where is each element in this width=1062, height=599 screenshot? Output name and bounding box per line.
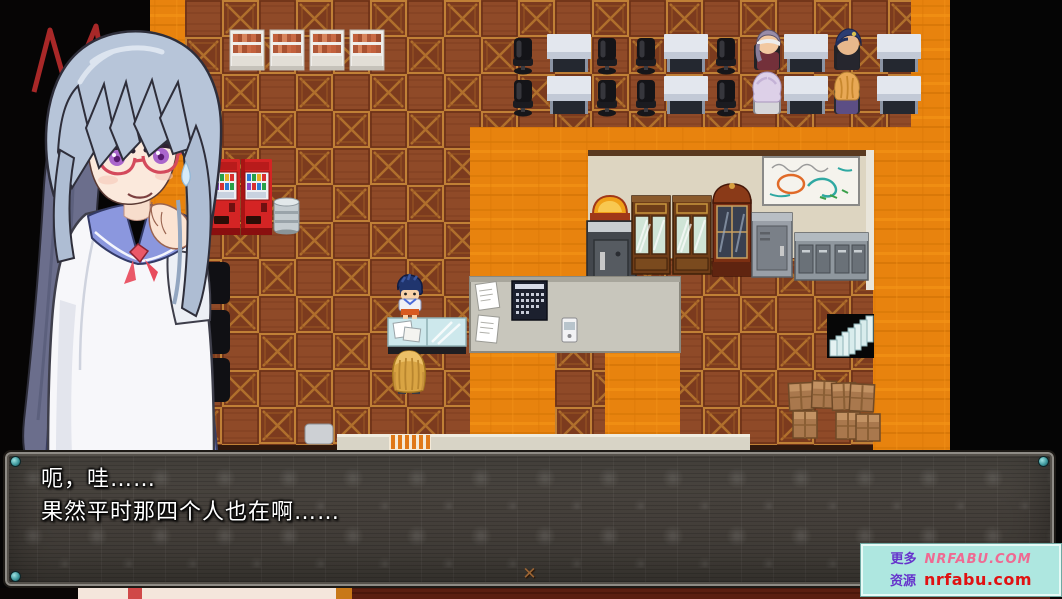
office-chair: [513, 80, 533, 117]
bookshelf: [310, 30, 344, 70]
whiteboard: [763, 157, 859, 205]
display-cabinet: [632, 196, 670, 274]
trash-can: [274, 198, 299, 235]
office-chair: [716, 38, 736, 75]
intercom: [562, 318, 577, 342]
office-chair: [597, 80, 617, 117]
continue-indicator-icon[interactable]: ✕: [522, 564, 536, 584]
tall-cupboard: [713, 183, 751, 276]
vending-machine: [241, 159, 272, 235]
bookshelf: [350, 30, 384, 70]
npc-blue-hat[interactable]: [834, 29, 861, 70]
office-chair: [636, 38, 656, 75]
screw-icon: [1038, 456, 1049, 467]
screw-icon: [10, 571, 21, 582]
watermark-site: nrfabu.com: [924, 570, 1032, 589]
office-chair: [597, 38, 617, 75]
player-boy[interactable]: [398, 274, 423, 319]
office-chair: [513, 38, 533, 75]
blonde-girl[interactable]: [393, 351, 426, 394]
game-screen: 呃，哇…… 果然平时那四个人也在啊…… ✕ 更多 NRFABU.COM 资源 n…: [0, 0, 1062, 599]
metal-locker: [752, 213, 792, 277]
bulletin-room: [470, 277, 680, 352]
office-desk: [547, 76, 591, 114]
office-desk: [784, 76, 828, 114]
npc-blonde[interactable]: [834, 72, 860, 114]
watermark-row: 更多 NRFABU.COM: [863, 550, 1059, 569]
office-desk: [547, 34, 591, 72]
npc-lavender-hair[interactable]: [753, 72, 781, 114]
office-desk: [784, 34, 828, 72]
screw-icon: [10, 456, 21, 467]
back-room: [587, 150, 874, 292]
dialogue-line-2: 果然平时那四个人也在啊……: [41, 496, 340, 529]
watermark-row: 资源 nrfabu.com: [863, 570, 1059, 591]
staircase-down[interactable]: [827, 314, 874, 358]
metal-cabinet: [795, 233, 868, 280]
dialogue-text: 呃，哇…… 果然平时那四个人也在啊……: [41, 463, 340, 529]
watermark-label: 更多: [890, 550, 916, 569]
office-desk: [664, 76, 708, 114]
office-chair: [716, 80, 736, 117]
office-chair: [636, 80, 656, 117]
portrait-girl: [0, 0, 240, 460]
office-desk: [664, 34, 708, 72]
display-cabinet: [673, 196, 711, 274]
office-desk: [877, 34, 921, 72]
dialogue-line-1: 呃，哇……: [41, 463, 340, 496]
office-desk: [877, 76, 921, 114]
watermark-site: NRFABU.COM: [924, 550, 1031, 569]
watermark-label: 资源: [890, 572, 916, 591]
watermark: 更多 NRFABU.COM 资源 nrfabu.com: [861, 544, 1061, 596]
glass-counter: [388, 318, 466, 354]
wall-calendar: [512, 281, 547, 320]
bookshelf: [270, 30, 304, 70]
